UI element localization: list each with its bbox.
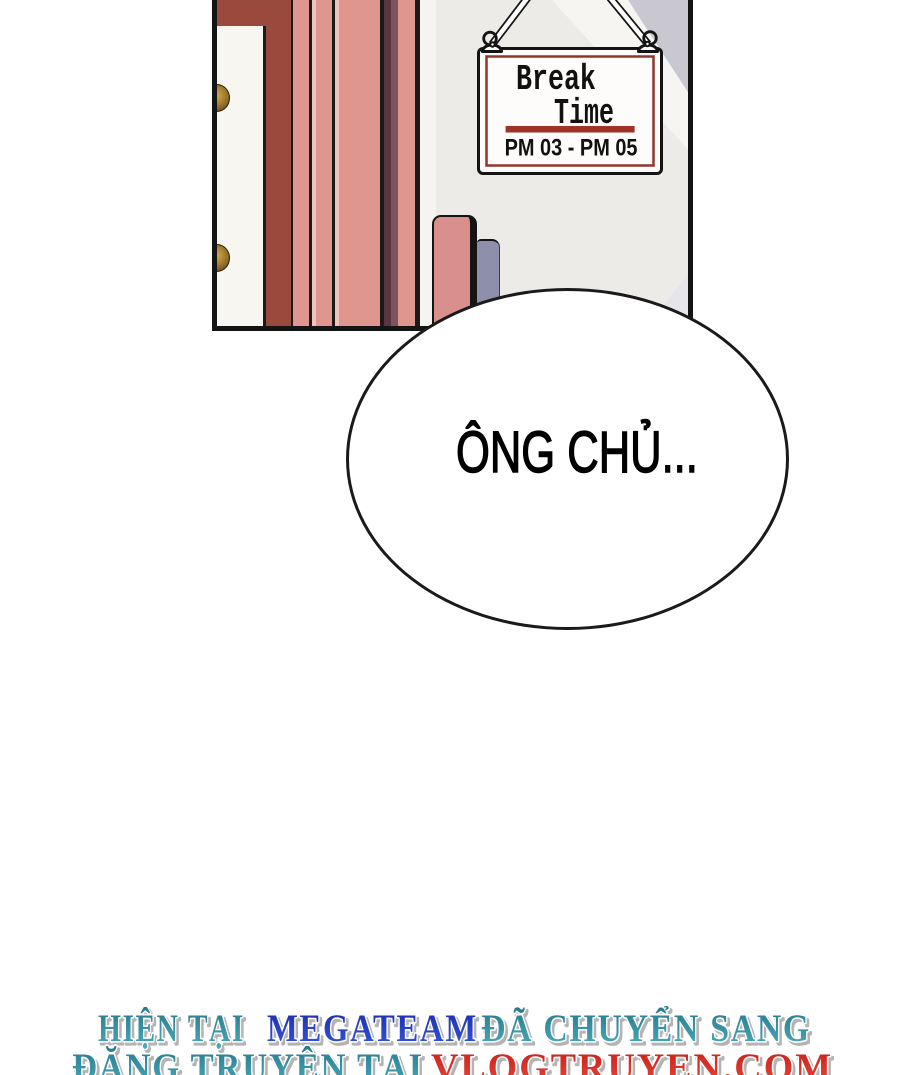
svg-text:ÔNG CHỦ...: ÔNG CHỦ... xyxy=(456,419,698,485)
svg-text:ĐĂNG TRUYỆN TẠI: ĐĂNG TRUYỆN TẠI xyxy=(72,1045,424,1075)
svg-text:VLOGTRUYEN.COM: VLOGTRUYEN.COM xyxy=(431,1047,833,1075)
svg-text:MEGATEAM: MEGATEAM xyxy=(267,1006,478,1049)
svg-text:HIỆN TẠI: HIỆN TẠI xyxy=(98,1007,245,1050)
svg-text:ĐÃ CHUYỂN SANG: ĐÃ CHUYỂN SANG xyxy=(481,1007,811,1050)
